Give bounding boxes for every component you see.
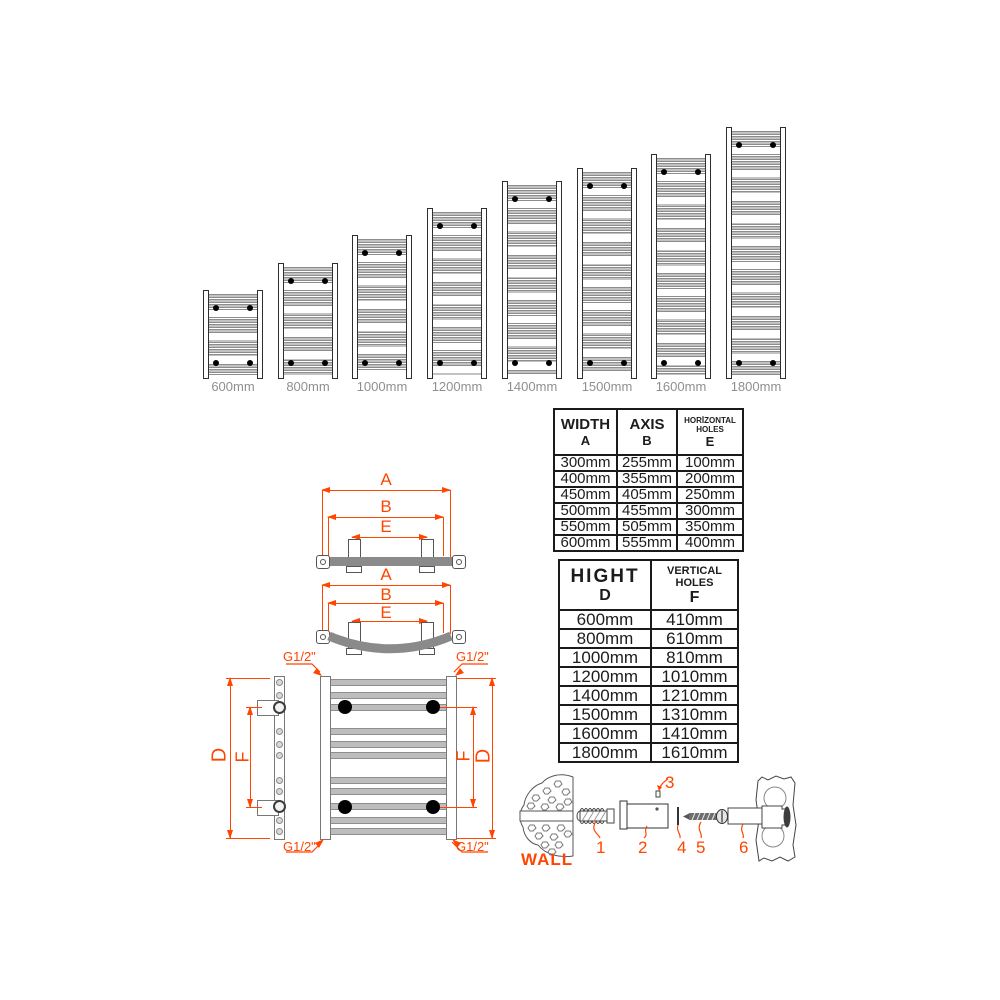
thread-leader-arrowheads [313,668,464,848]
locking-pin [677,807,679,825]
fixing-screw [683,810,728,824]
thread-leader-lines [286,664,488,852]
diagram-overlay-lines [0,0,1000,1000]
part-number-2: 2 [638,838,647,858]
wall-section [520,775,573,857]
wall-label: WALL [521,850,573,870]
part-number-5: 5 [696,838,705,858]
part-number-6: 6 [739,838,748,858]
part-number-4: 4 [677,838,686,858]
towel-radiator-spec-sheet: 600mm800mm1000mm1200mm1400mm1500mm1600mm… [0,0,1000,1000]
curved-rail-bar [329,636,451,649]
bracket-arm [728,808,762,824]
part-number-3: 3 [665,773,674,793]
drill-hole [520,811,573,821]
part-number-1: 1 [596,838,605,858]
grub-screw [656,791,660,797]
bracket-sleeve [620,801,668,829]
